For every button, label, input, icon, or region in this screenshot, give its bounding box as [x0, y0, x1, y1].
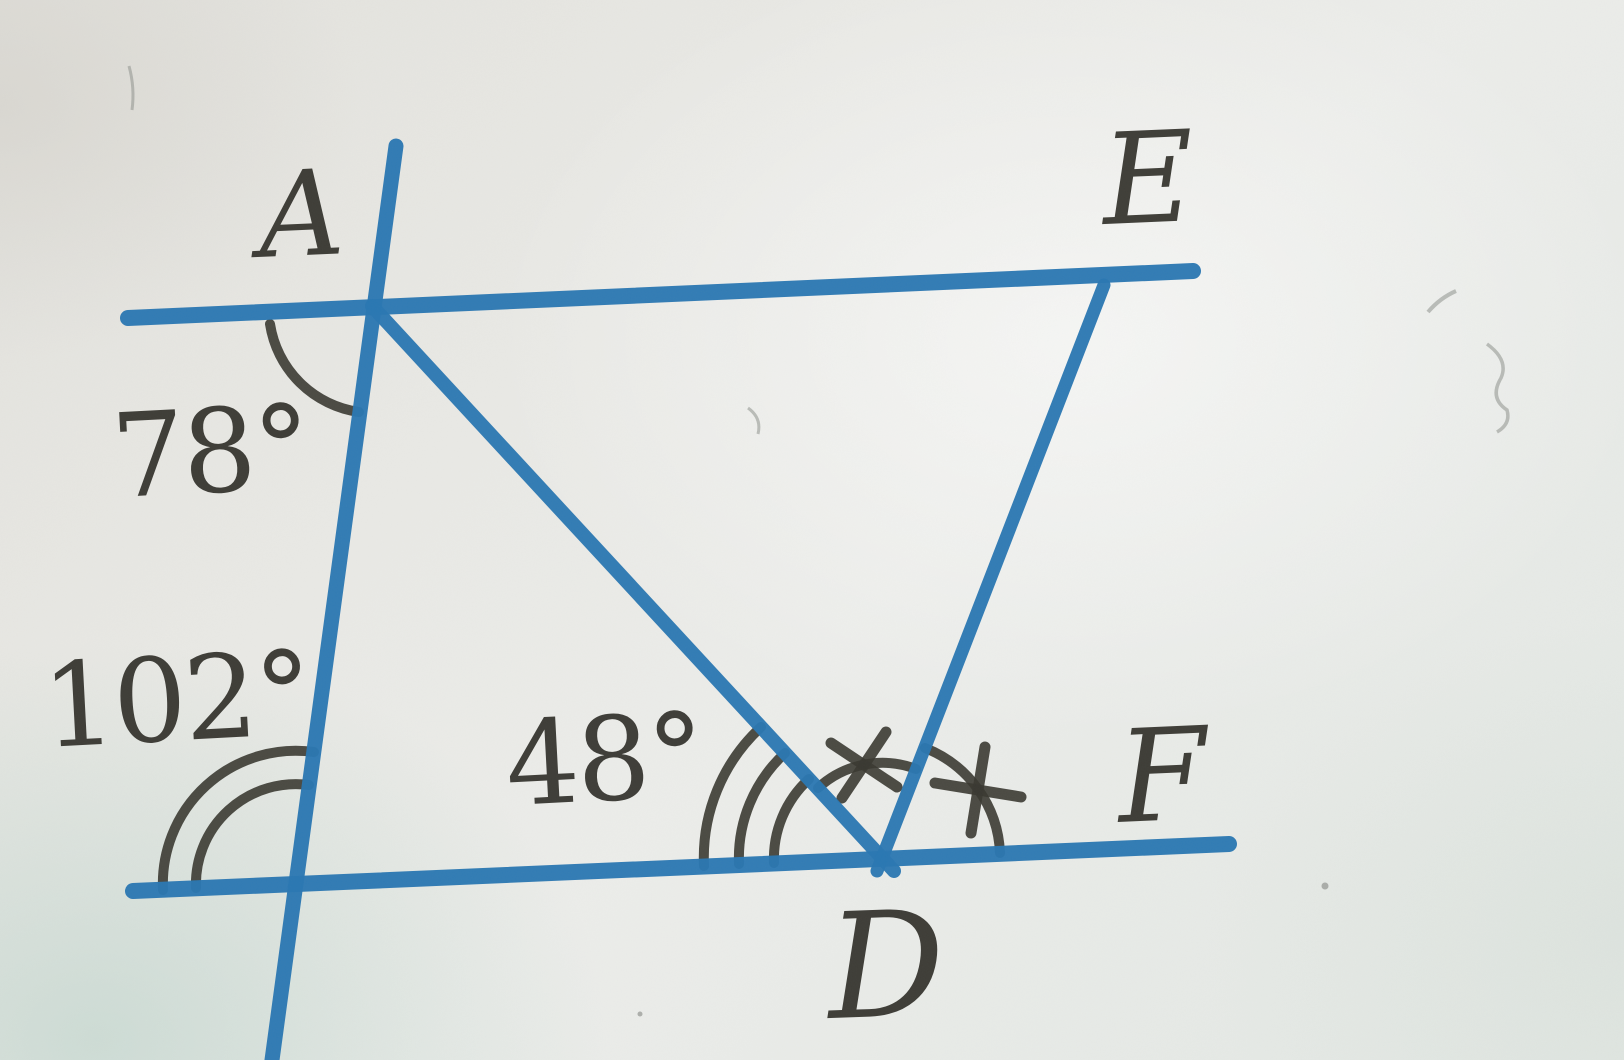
- paper-grain-overlay: [0, 0, 1624, 1060]
- geometry-figure: A E F D 78° 102° 48°: [0, 0, 1624, 1060]
- diagram-photo: A E F D 78° 102° 48°: [0, 0, 1624, 1060]
